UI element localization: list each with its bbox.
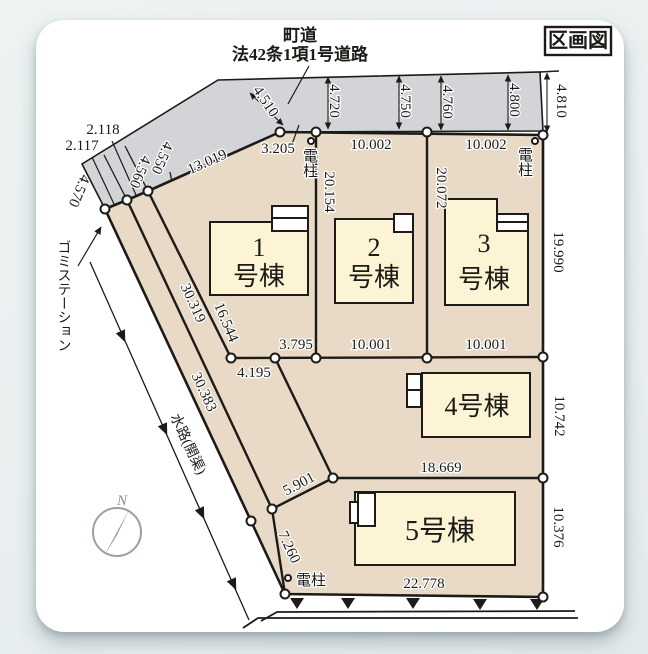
flow-arrow	[227, 577, 241, 592]
dim-lot2-depth: 20.072	[433, 167, 449, 208]
building-3-number: 3	[478, 229, 491, 258]
boundary-node	[312, 354, 321, 363]
compass: N	[93, 493, 141, 556]
survey-marker	[473, 599, 487, 610]
boundary-node	[144, 187, 153, 196]
dim-road-w6: 4.810	[553, 84, 569, 118]
survey-marker	[341, 598, 355, 609]
page-title: 区画図	[548, 30, 608, 52]
boundary-node	[268, 505, 277, 514]
boundary-node	[539, 593, 548, 602]
building-1-suffix: 号棟	[233, 262, 285, 291]
waterway-label: 水路(開渠)	[167, 411, 209, 477]
boundary-node	[539, 474, 548, 483]
boundary-node	[227, 354, 236, 363]
boundary-node	[539, 131, 548, 140]
south-road-edge-lower	[243, 618, 578, 628]
dim-mid-a: 3.795	[279, 337, 313, 353]
dim-mid-b: 4.195	[237, 365, 271, 381]
flow-arrow	[195, 506, 209, 521]
utility-pole-marker	[308, 138, 314, 144]
dim-lot3-front: 10.002	[465, 137, 506, 153]
utility-pole-marker	[285, 575, 291, 581]
boundary-node	[329, 474, 338, 483]
boundary-node	[271, 354, 280, 363]
boundary-node	[312, 128, 321, 137]
dim-lot3-bottom: 10.001	[465, 337, 506, 353]
dim-road-w2: 4.720	[326, 84, 342, 118]
utility-pole-marker	[532, 138, 538, 144]
boundary-node	[123, 196, 132, 205]
compass-needle	[104, 508, 130, 556]
dim-road-w5: 4.800	[506, 83, 522, 117]
dim-strip-e: 4.570	[65, 172, 93, 209]
flow-arrow	[116, 329, 130, 344]
dim-lot4-right: 10.742	[551, 395, 567, 436]
dim-road-w4: 4.760	[439, 85, 455, 119]
boundary-node	[101, 205, 110, 214]
boundary-node	[423, 128, 432, 137]
lot-plan-drawing: N 区画図 町道 法42条1項1号道路 4.510 4.720 4.750 4.…	[0, 0, 648, 654]
north-label: N	[116, 493, 128, 509]
building-1-number: 1	[253, 233, 266, 262]
boundary-node	[539, 353, 548, 362]
boundary-node	[247, 517, 256, 526]
dim-south-edge: 22.778	[403, 576, 444, 592]
building-4-label: 4号棟	[444, 392, 509, 421]
dim-lot1-front: 3.205	[261, 141, 295, 157]
building-5-porch	[358, 493, 375, 526]
survey-marker	[290, 598, 304, 609]
boundary-node	[276, 128, 285, 137]
dim-strip-a: 2.118	[86, 122, 119, 138]
pole-top-right-label: 電柱	[516, 147, 533, 177]
building-5-label: 5号棟	[405, 515, 475, 547]
dim-lot2-bottom: 10.001	[350, 337, 391, 353]
road-name-line2: 法42条1項1号道路	[232, 44, 369, 64]
road-top-edge-extension	[540, 71, 559, 72]
dim-lot5-right: 10.376	[550, 506, 566, 548]
south-road-edge-upper	[261, 611, 575, 621]
survey-marker	[406, 598, 420, 609]
boundary-node	[281, 590, 290, 599]
garbage-station-label: ゴミステーション	[56, 240, 71, 352]
building-3-suffix: 号棟	[458, 265, 510, 294]
road-name-line1: 町道	[283, 25, 317, 45]
pole-top-left-label: 電柱	[301, 148, 318, 178]
dim-road-w3: 4.750	[397, 84, 413, 118]
building-2-number: 2	[368, 233, 381, 262]
dim-lot2-front: 10.002	[350, 137, 391, 153]
dim-lot45-line: 18.669	[420, 460, 461, 476]
building-2-porch	[394, 214, 413, 232]
building-2-suffix: 号棟	[348, 263, 400, 292]
building-5-porch-outer	[350, 502, 358, 523]
boundary-node	[423, 354, 432, 363]
dim-lot3-right: 19.990	[550, 231, 566, 272]
pole-bottom-label: 電柱	[296, 572, 326, 589]
dim-strip-b: 2.117	[65, 138, 99, 154]
garbage-station-leader	[78, 227, 101, 266]
dim-lot1-depth: 20.154	[321, 171, 337, 213]
